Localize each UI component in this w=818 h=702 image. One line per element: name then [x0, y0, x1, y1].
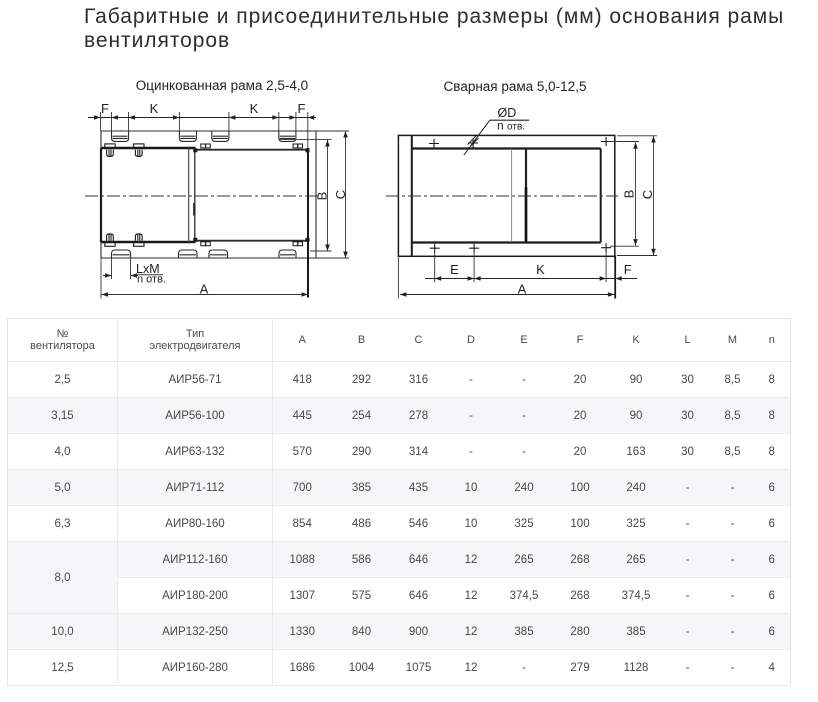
svg-text:F: F: [624, 262, 632, 277]
svg-text:K: K: [150, 101, 159, 116]
svg-text:Сварная рама 5,0-12,5: Сварная рама 5,0-12,5: [444, 79, 587, 94]
svg-text:F: F: [298, 101, 306, 116]
svg-text:K: K: [250, 101, 259, 116]
svg-text:K: K: [536, 262, 545, 277]
svg-text:n отв.: n отв.: [497, 119, 525, 133]
svg-text:Оцинкованная рама 2,5-4,0: Оцинкованная рама 2,5-4,0: [136, 78, 308, 93]
svg-text:A: A: [200, 282, 209, 297]
svg-text:F: F: [101, 101, 109, 116]
svg-text:n отв.: n отв.: [137, 274, 166, 286]
svg-text:B: B: [622, 190, 637, 199]
svg-text:C: C: [333, 190, 348, 199]
svg-text:E: E: [450, 262, 459, 277]
svg-text:C: C: [640, 190, 655, 199]
svg-text:A: A: [518, 282, 527, 297]
svg-text:B: B: [315, 192, 330, 201]
